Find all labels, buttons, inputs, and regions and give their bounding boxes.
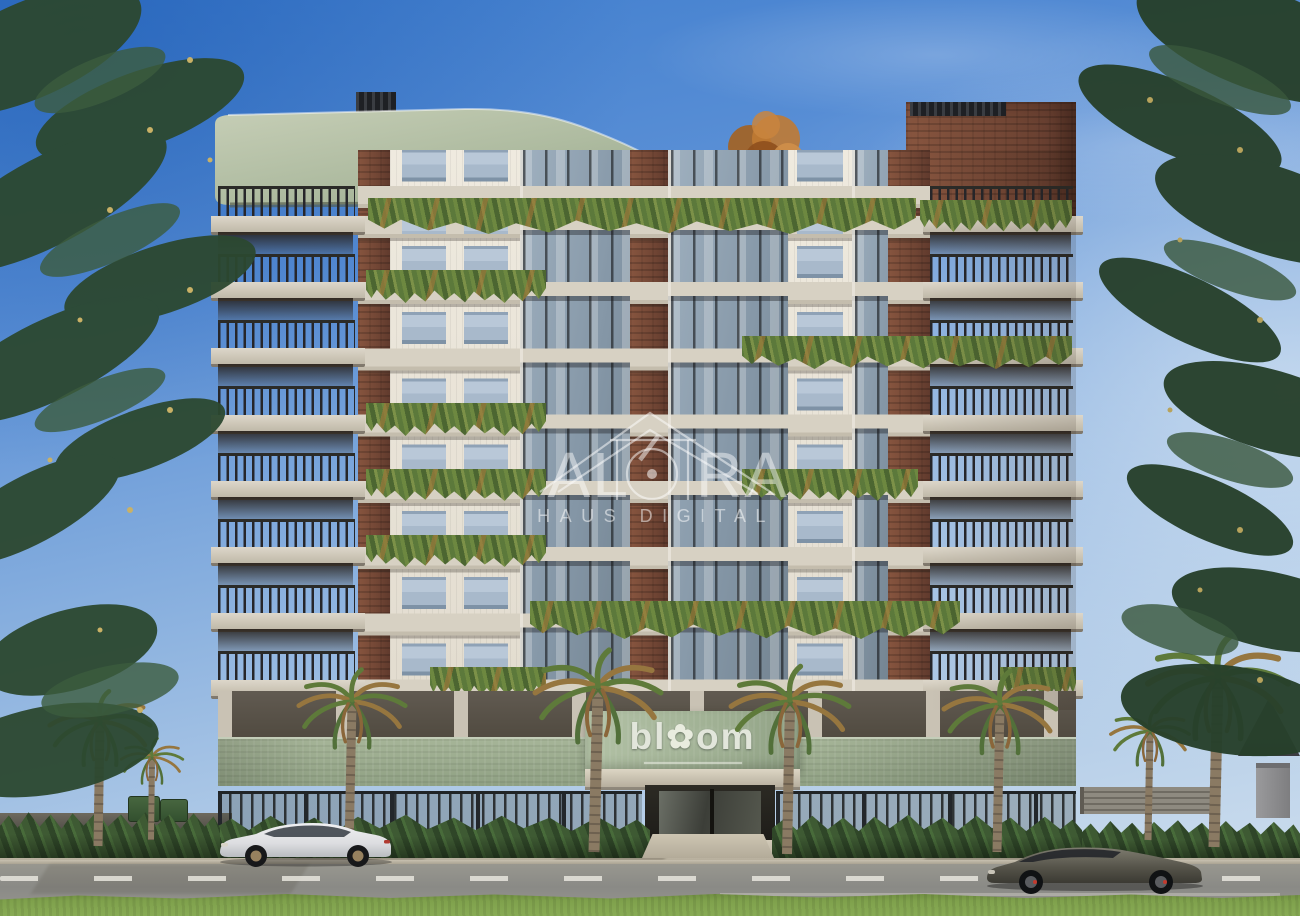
vehicles — [200, 800, 1250, 900]
right-edge-tree — [1030, 0, 1300, 790]
left-edge-tree — [0, 0, 290, 840]
architectural-render-scene: bl✿om — [0, 0, 1300, 916]
watermark-brand-right: RA — [696, 439, 789, 511]
logo-center-dot — [647, 469, 657, 479]
tower-vents — [910, 102, 1006, 116]
watermark-brand-left: AL — [548, 439, 630, 511]
watermark: AL RA HAUS DIGITAL — [518, 378, 808, 548]
watermark-tagline: HAUS DIGITAL — [537, 506, 775, 526]
dark-coupe — [987, 848, 1203, 895]
